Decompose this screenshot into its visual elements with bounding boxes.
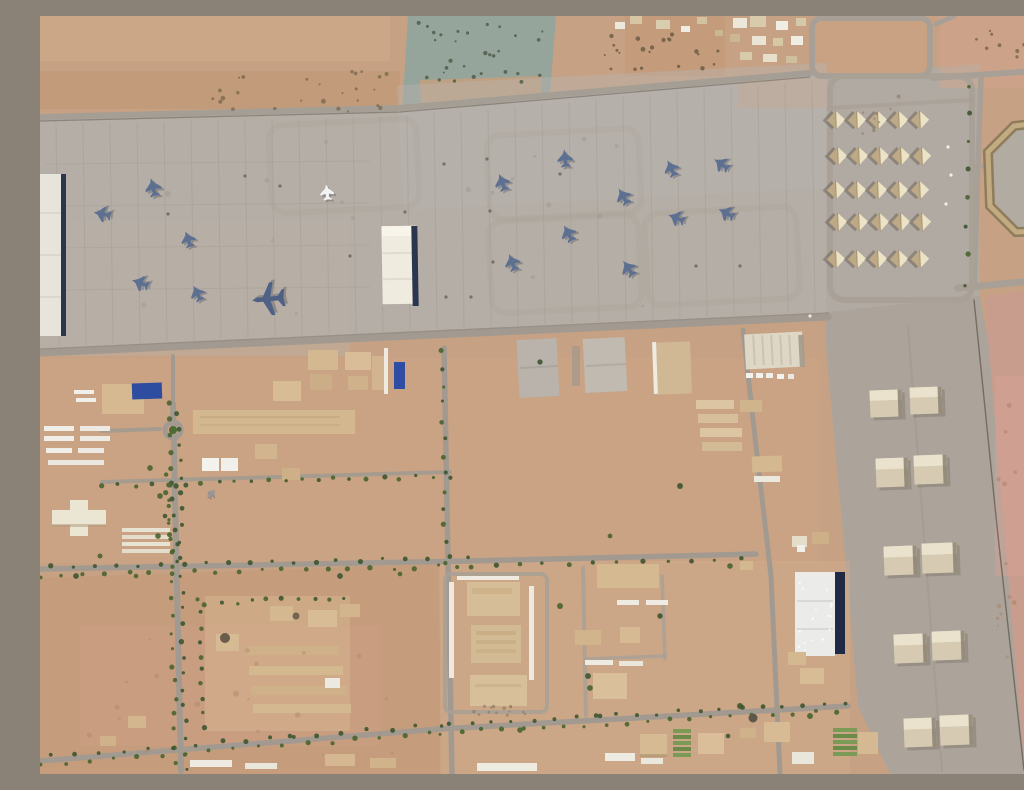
ground-vehicle	[694, 264, 697, 267]
tree	[963, 284, 966, 287]
tree	[174, 697, 178, 701]
ground-speckle	[322, 754, 324, 756]
tree	[279, 566, 284, 571]
hangar	[939, 714, 976, 748]
tree	[441, 522, 446, 527]
tree	[823, 702, 826, 705]
tree	[72, 752, 77, 757]
lawn	[833, 746, 857, 750]
ground-speckle	[641, 304, 644, 307]
ground-speckle	[238, 77, 240, 79]
tree	[195, 597, 199, 601]
tree	[412, 566, 417, 571]
building	[48, 460, 104, 465]
tree	[460, 729, 465, 734]
building	[122, 528, 170, 532]
ground-speckle	[341, 92, 343, 94]
ground-speckle	[391, 752, 394, 755]
tree	[292, 735, 296, 739]
tree	[677, 709, 681, 713]
ground-speckle	[273, 107, 276, 110]
tree	[728, 714, 731, 717]
hangar-roof	[914, 454, 947, 466]
ground-speckle	[221, 96, 226, 101]
ground-speckle	[118, 717, 121, 720]
tree	[171, 746, 175, 750]
ground-speckle	[537, 38, 541, 42]
building	[449, 582, 454, 678]
ground-speckle	[504, 70, 508, 74]
tree	[112, 756, 115, 759]
warehouse	[470, 675, 527, 706]
tree	[180, 523, 184, 527]
tree	[448, 476, 452, 480]
tree	[393, 568, 396, 571]
tree	[598, 714, 603, 719]
ground-speckle	[1007, 403, 1012, 408]
ground-speckle	[990, 33, 993, 36]
building	[340, 604, 360, 617]
tree	[200, 697, 204, 701]
tree	[268, 735, 272, 739]
building	[80, 436, 110, 441]
ground-speckle	[694, 49, 698, 53]
tree	[441, 507, 445, 511]
building	[308, 610, 337, 627]
tree	[306, 740, 311, 745]
building	[575, 630, 601, 645]
tree	[182, 656, 186, 660]
building	[630, 16, 642, 24]
tree	[194, 744, 198, 748]
ground-speckle	[1014, 471, 1018, 475]
tree	[179, 639, 184, 644]
ground-speckle	[1002, 482, 1007, 487]
tree	[171, 647, 174, 650]
ground-speckle	[640, 67, 643, 70]
ground-speckle	[538, 74, 541, 77]
ground-speckle	[463, 65, 466, 68]
tree	[455, 565, 459, 569]
ground-speckle	[799, 630, 801, 632]
tree	[167, 504, 171, 508]
tree	[687, 717, 692, 722]
tree	[518, 562, 522, 566]
tree	[342, 597, 345, 600]
building	[763, 54, 777, 62]
tree	[49, 753, 53, 757]
building	[788, 652, 806, 665]
building	[791, 36, 803, 45]
tree	[206, 748, 210, 752]
tree	[717, 708, 720, 711]
tree	[313, 597, 317, 601]
tree	[443, 490, 447, 494]
tree	[123, 750, 126, 753]
hangar-roof	[894, 633, 927, 645]
building	[476, 631, 516, 635]
tree	[93, 564, 97, 568]
tree	[441, 399, 444, 402]
tree	[635, 713, 639, 717]
tree	[403, 556, 408, 561]
ground-speckle	[265, 178, 270, 183]
tree	[655, 713, 658, 716]
building	[797, 545, 805, 552]
building	[740, 52, 752, 60]
tree	[173, 483, 178, 488]
tree	[168, 433, 173, 438]
white-tent	[221, 458, 238, 471]
ground-speckle	[231, 107, 235, 111]
ground-speckle	[633, 67, 636, 70]
tree	[72, 566, 75, 569]
building	[40, 212, 64, 214]
ground-speckle	[802, 588, 804, 590]
tree	[251, 598, 254, 601]
tree	[174, 411, 179, 416]
tree	[157, 493, 163, 499]
ground-speckle	[862, 111, 864, 113]
ground-vehicle	[278, 184, 281, 187]
ground-speckle	[610, 67, 613, 70]
ground-speckle	[861, 132, 864, 135]
ground-speckle	[360, 70, 363, 73]
tree	[471, 721, 475, 725]
lawn	[673, 747, 691, 751]
ground-vehicle	[444, 295, 447, 298]
ground-speckle	[247, 698, 249, 700]
tree	[304, 567, 309, 572]
tree	[288, 734, 293, 739]
white-building	[795, 572, 835, 656]
ground-vehicle	[243, 174, 246, 177]
tree	[80, 572, 84, 576]
ground-speckle	[378, 734, 380, 736]
tree	[297, 597, 301, 601]
ground-speckle	[245, 648, 249, 652]
building	[273, 381, 301, 401]
tree	[347, 477, 351, 481]
tree	[314, 560, 319, 565]
tree	[668, 717, 673, 722]
tree	[226, 560, 231, 565]
tree	[640, 559, 645, 564]
hangar	[904, 717, 940, 750]
tree	[181, 703, 185, 707]
ground-speckle	[376, 104, 379, 107]
satellite-image	[40, 16, 1024, 774]
ground-speckle	[354, 72, 358, 76]
tree	[167, 400, 172, 405]
tree	[582, 725, 585, 728]
ground-speckle	[425, 76, 429, 80]
tree	[175, 560, 179, 564]
tree	[761, 704, 766, 709]
ground-speckle	[488, 53, 491, 56]
building	[52, 524, 106, 527]
building	[797, 600, 833, 602]
building	[730, 34, 740, 42]
tree	[585, 673, 591, 679]
building	[858, 732, 878, 754]
tree	[48, 563, 53, 568]
ground-speckle	[233, 691, 239, 697]
ground-speckle	[1006, 655, 1009, 658]
hangar-roof	[910, 386, 942, 397]
tree	[181, 606, 184, 609]
building	[800, 668, 824, 684]
building	[746, 373, 753, 378]
tree	[713, 559, 716, 562]
tree	[201, 711, 204, 714]
tree	[657, 613, 662, 618]
tree	[509, 720, 512, 723]
ground-speckle	[373, 89, 375, 91]
tree	[771, 713, 775, 717]
building	[255, 444, 277, 459]
tree	[443, 561, 447, 565]
tree	[364, 727, 368, 731]
roundabout-green	[169, 426, 177, 434]
tree	[199, 610, 203, 614]
ground-speckle	[305, 78, 308, 81]
ground-speckle	[472, 710, 475, 713]
tree	[317, 478, 321, 482]
building	[740, 400, 762, 412]
ground-feature	[749, 714, 758, 723]
tree	[326, 567, 331, 572]
ground-feature	[293, 613, 300, 620]
building	[656, 20, 670, 29]
building	[756, 373, 763, 378]
tree	[167, 532, 172, 537]
tree	[432, 476, 435, 479]
hangar	[910, 386, 946, 417]
ground-feature	[220, 633, 230, 643]
tree	[844, 702, 848, 706]
ground-speckle	[975, 38, 978, 41]
ground-speckle	[826, 589, 828, 591]
ground-speckle	[804, 642, 806, 644]
ground-feature	[946, 145, 949, 148]
ground-vehicle	[558, 172, 561, 175]
ground-speckle	[508, 710, 510, 712]
ground-speckle	[700, 66, 704, 70]
tree	[469, 565, 474, 570]
ground-speckle	[615, 49, 618, 52]
ground-speckle	[336, 107, 340, 111]
ground-speckle	[830, 605, 832, 607]
tree	[414, 474, 417, 477]
ground-speckle	[524, 713, 526, 715]
building	[44, 436, 74, 441]
building	[76, 398, 96, 402]
ground-speckle	[829, 615, 831, 617]
tree	[442, 385, 445, 388]
building	[529, 586, 534, 680]
ground-speckle	[498, 25, 501, 28]
lawn	[833, 728, 857, 732]
ground-speckle	[490, 706, 492, 708]
ground-speckle	[612, 44, 615, 47]
ground-speckle	[480, 72, 483, 75]
tree	[542, 726, 546, 730]
tree	[345, 566, 350, 571]
hangar-roof	[876, 457, 908, 469]
warehouse	[467, 582, 520, 616]
tree	[199, 655, 204, 660]
tree	[440, 724, 443, 727]
road	[102, 429, 160, 431]
tree	[169, 496, 174, 501]
tree	[263, 596, 268, 601]
ground-speckle	[875, 112, 878, 115]
ground-speckle	[483, 51, 487, 55]
tree	[205, 561, 208, 564]
tree	[280, 744, 284, 748]
tree	[575, 715, 579, 719]
ground-speckle	[828, 628, 830, 630]
tree	[331, 475, 335, 479]
ground-speckle	[300, 100, 302, 102]
tree	[164, 472, 168, 476]
tree	[677, 483, 683, 489]
ground-speckle	[443, 71, 445, 73]
building	[796, 18, 806, 26]
ground-speckle	[149, 638, 151, 640]
ground-speckle	[218, 89, 222, 93]
tree	[314, 733, 319, 738]
ground-speckle	[878, 121, 880, 123]
ground-speckle	[897, 95, 901, 99]
tree	[540, 561, 543, 564]
building	[698, 733, 724, 754]
ground-vehicle	[485, 157, 488, 160]
building	[697, 17, 707, 24]
tree	[614, 712, 618, 716]
tree	[443, 436, 447, 440]
ground-speckle	[650, 45, 654, 49]
tree	[587, 685, 593, 691]
ground-speckle	[492, 54, 495, 57]
tree	[184, 737, 188, 741]
building	[733, 18, 747, 28]
tree	[73, 573, 79, 579]
ground-speckle	[302, 651, 306, 655]
ground-speckle	[378, 75, 382, 79]
hangar	[914, 454, 951, 487]
building	[270, 606, 293, 621]
building	[384, 348, 388, 394]
tree	[266, 477, 271, 482]
ground-speckle	[357, 99, 359, 101]
building	[80, 426, 110, 431]
building	[70, 500, 88, 536]
tree	[537, 359, 542, 364]
tree	[466, 556, 470, 560]
ground-speckle	[466, 31, 469, 34]
tree	[102, 571, 107, 576]
ground-speckle	[478, 713, 481, 716]
tree	[403, 733, 408, 738]
ground-vehicle	[442, 162, 445, 165]
tree	[494, 563, 499, 568]
tree	[172, 514, 176, 518]
building	[200, 424, 340, 426]
barracks-row	[249, 666, 343, 675]
building	[619, 661, 643, 666]
tree	[199, 626, 204, 631]
tree	[198, 481, 203, 486]
building	[754, 476, 780, 482]
tree	[183, 752, 187, 756]
ground-speckle	[677, 65, 680, 68]
tree	[180, 506, 185, 511]
building	[698, 414, 738, 423]
tree	[447, 722, 451, 726]
building	[593, 673, 627, 699]
tree	[221, 738, 226, 743]
ground-vehicle	[469, 295, 472, 298]
building	[100, 736, 116, 746]
ground-speckle	[670, 32, 674, 36]
ground-speckle	[502, 706, 505, 709]
ground-speckle	[799, 582, 801, 584]
ground-speckle	[798, 646, 800, 648]
desert-patch	[812, 18, 930, 76]
lawn	[833, 740, 857, 744]
tree	[147, 465, 153, 471]
ground-speckle	[236, 91, 239, 94]
building	[764, 722, 790, 742]
ground-speckle	[804, 649, 806, 651]
building	[646, 600, 668, 605]
building	[325, 754, 355, 766]
tree	[116, 482, 120, 486]
building	[812, 532, 829, 544]
building	[792, 752, 814, 764]
tree	[167, 521, 170, 524]
tree	[202, 725, 207, 730]
tree	[440, 367, 444, 371]
ground-speckle	[713, 63, 716, 66]
ground-speckle	[141, 303, 146, 308]
tree	[185, 768, 188, 771]
hangar-roof	[904, 717, 936, 729]
hangar	[921, 542, 960, 576]
ground-speckle	[636, 36, 641, 41]
ground-vehicle	[348, 254, 351, 257]
tree	[327, 597, 331, 601]
tree	[479, 727, 483, 731]
tree	[780, 705, 784, 709]
ground-speckle	[456, 30, 459, 33]
tree	[337, 573, 343, 579]
tree	[169, 596, 174, 601]
building	[640, 754, 667, 757]
building	[617, 600, 639, 605]
tree	[64, 762, 68, 766]
tree	[364, 477, 369, 482]
ground-speckle	[1007, 595, 1011, 599]
ground-speckle	[145, 749, 149, 753]
building	[715, 30, 723, 36]
building	[773, 38, 783, 46]
building	[325, 678, 340, 688]
tree	[173, 678, 177, 682]
tree	[967, 111, 972, 116]
